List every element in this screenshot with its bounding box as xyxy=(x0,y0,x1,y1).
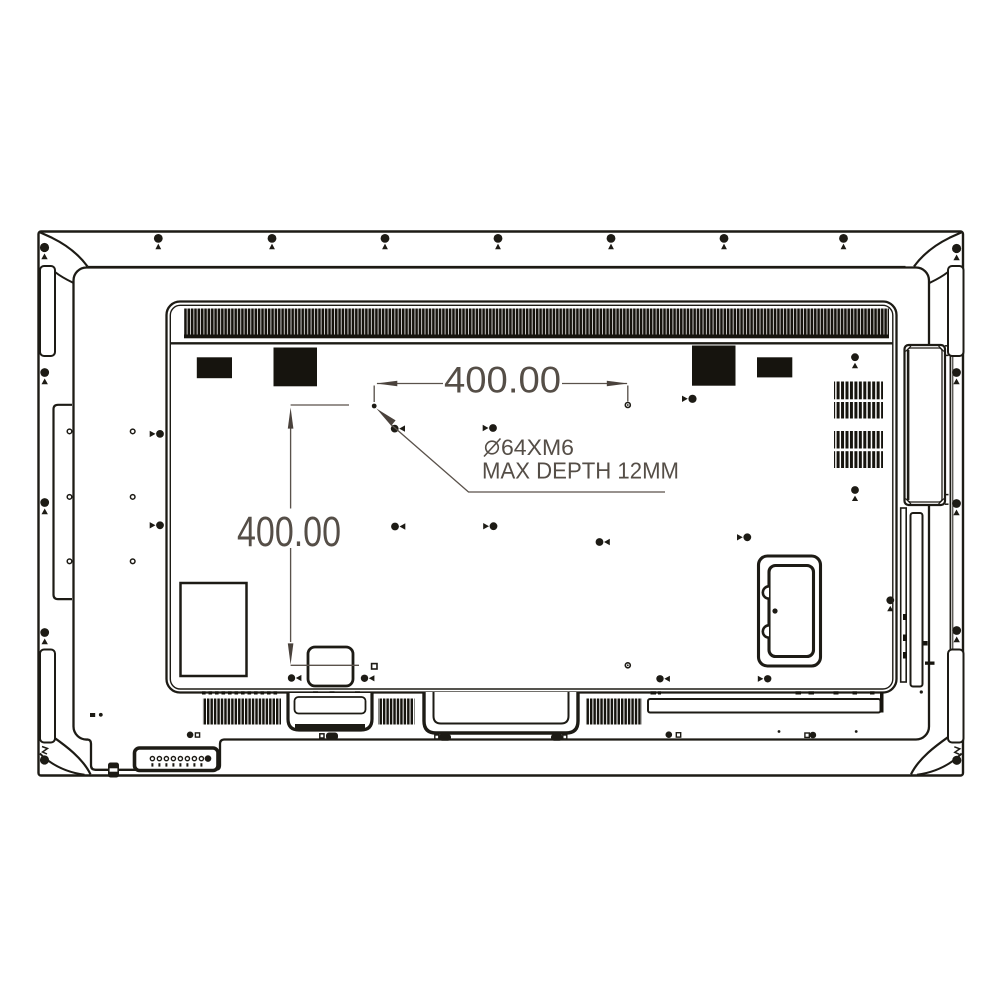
svg-text:400.00: 400.00 xyxy=(444,359,561,400)
svg-text:400.00: 400.00 xyxy=(237,508,341,556)
svg-text:64XM6: 64XM6 xyxy=(501,435,574,460)
svg-text:MAX DEPTH 12MM: MAX DEPTH 12MM xyxy=(482,458,679,484)
